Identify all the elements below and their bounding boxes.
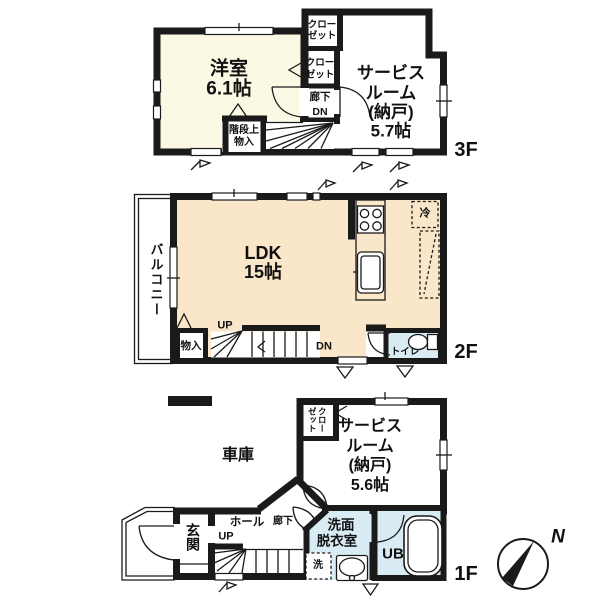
washbasin-icon (337, 556, 368, 581)
kitchen-wall-stub (348, 197, 355, 240)
stair-storage-label-2: 物入 (234, 138, 254, 148)
ldk-size: 15帖 (244, 263, 282, 281)
garage-diagonal-wall (259, 479, 298, 509)
dn-2f-label: DN (316, 342, 332, 353)
hall-label: ホール (230, 517, 265, 529)
service-1f-label-3: (納戸) (349, 458, 392, 474)
stairs-2f (211, 328, 320, 358)
service-3f-label-1: サービス (357, 65, 425, 82)
service-3f-label-2: ルーム (366, 85, 417, 102)
floor-2f-label: 2F (454, 342, 477, 362)
service-1f-label-1: サービス (338, 419, 402, 435)
service-3f-label-4: 5.7帖 (371, 123, 412, 140)
floor-plan-drawing (0, 0, 600, 600)
refrigerator-label: 冷 (420, 209, 431, 220)
washroom-label-2: 脱衣室 (317, 534, 358, 548)
storage-2f-label: 物入 (181, 341, 202, 352)
compass-north-label: N (551, 528, 565, 547)
toilet-label: トイレ (391, 347, 420, 357)
stove-icon (358, 206, 384, 233)
closet-top-label-1: クロー (308, 20, 337, 30)
closet-mid-label-2: ゼット (306, 70, 335, 80)
service-1f-label-4: 5.6帖 (351, 478, 389, 494)
corridor-1f-label: 廊下 (273, 517, 293, 527)
closet-top-label-2: ゼット (308, 31, 337, 41)
garage-wall-stub (168, 396, 212, 406)
stair-storage-label-1: 階段上 (229, 126, 259, 136)
washroom-label-1: 洗面 (328, 518, 355, 532)
up-2f-label: UP (217, 321, 232, 332)
western-room-size: 6.1帖 (206, 80, 251, 99)
kitchen-sink-icon (353, 252, 384, 293)
service-1f-label-2: ルーム (346, 439, 394, 455)
floor-1f-plan (122, 392, 548, 595)
corridor-3f-label: 廊下 (310, 92, 331, 103)
laundry-label: 洗 (313, 561, 323, 571)
up-1f-label: UP (218, 532, 233, 543)
western-room-label: 洋室 (210, 60, 248, 79)
closet-1f-col-left: ゼット (308, 407, 317, 433)
floor-plan-image: 洋室 6.1帖 クロー ゼット クロー ゼット 廊下 DN 階段上 物入 サービ… (0, 0, 600, 600)
compass-icon (498, 539, 548, 589)
floor-3f-label: 3F (454, 140, 477, 160)
unit-bath-label: UB (382, 547, 404, 562)
dn-3f-label: DN (312, 107, 327, 118)
service-3f-label-3: (納戸) (368, 104, 413, 121)
entrance-porch-shape (122, 508, 174, 581)
floor-1f-label: 1F (454, 564, 477, 584)
vent-flags-3f (191, 160, 409, 172)
ldk-label: LDK (245, 244, 282, 262)
stairs-1f (214, 549, 303, 573)
closet-mid-label-1: クロー (306, 58, 335, 68)
stairs-3f (264, 122, 334, 149)
balcony-label: バルコニー (150, 243, 163, 318)
garage-label: 車庫 (222, 448, 254, 464)
closet-1f-col-right: クロー (318, 407, 327, 433)
bathtub-icon (404, 516, 442, 576)
entrance-label: 玄関 (186, 523, 200, 551)
